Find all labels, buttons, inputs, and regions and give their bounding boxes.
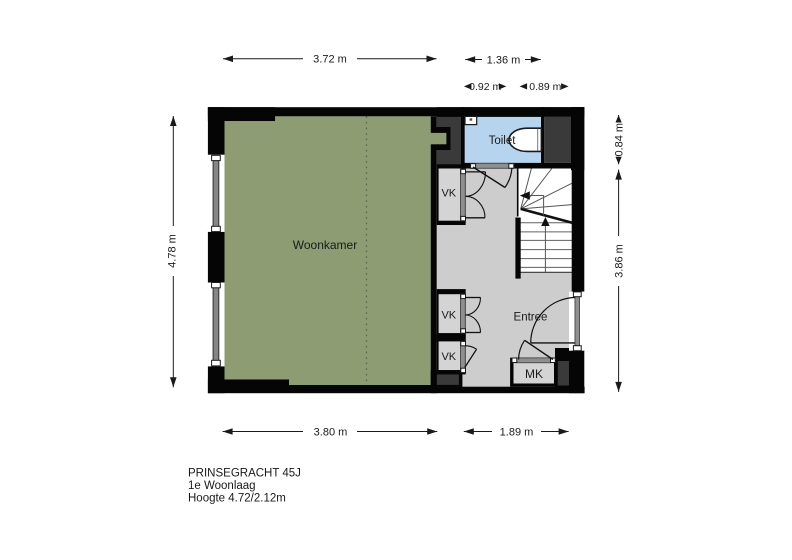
svg-text:1.89 m: 1.89 m xyxy=(500,426,534,438)
svg-text:Toilet: Toilet xyxy=(489,135,517,147)
svg-text:VK: VK xyxy=(441,310,456,322)
svg-text:MK: MK xyxy=(525,367,543,381)
svg-text:VK: VK xyxy=(441,351,456,363)
svg-text:Woonkamer: Woonkamer xyxy=(293,238,357,252)
svg-text:3.80 m: 3.80 m xyxy=(314,426,348,438)
svg-text:Hoogte 4.72/2.12m: Hoogte 4.72/2.12m xyxy=(188,493,286,505)
svg-text:1e Woonlaag: 1e Woonlaag xyxy=(188,480,256,492)
svg-text:PRINSEGRACHT 45J: PRINSEGRACHT 45J xyxy=(188,468,301,480)
svg-text:1.36 m: 1.36 m xyxy=(487,54,521,66)
svg-text:3.86 m: 3.86 m xyxy=(613,244,625,278)
svg-text:3.72 m: 3.72 m xyxy=(313,54,347,66)
svg-text:VK: VK xyxy=(441,188,456,200)
svg-text:0.84 m: 0.84 m xyxy=(613,123,625,157)
svg-text:0.92 m: 0.92 m xyxy=(469,81,501,93)
svg-text:4.78 m: 4.78 m xyxy=(167,234,179,268)
svg-text:0.89 m: 0.89 m xyxy=(529,81,561,93)
